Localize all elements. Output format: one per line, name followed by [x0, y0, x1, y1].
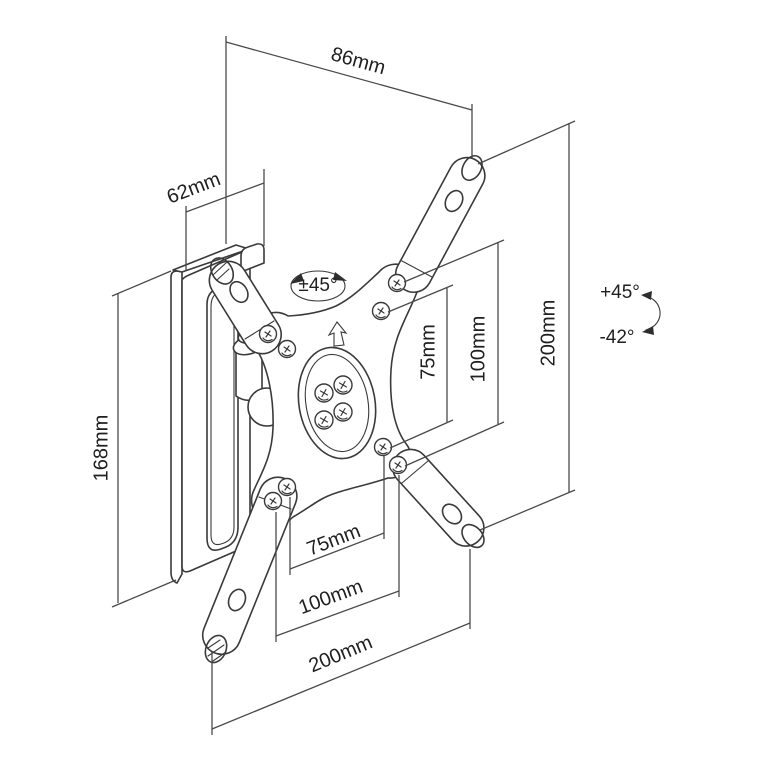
- dimension-label: 75mm: [304, 520, 364, 560]
- dimension-label: 100mm: [296, 576, 366, 619]
- dimension-label: 62mm: [164, 168, 224, 208]
- wall-mount-technical-diagram: ±45° +45° -42° 86mm 62mm 168mm: [0, 0, 760, 760]
- wall-plate-side-face: [171, 271, 182, 583]
- vesa100-screw-bottom-left: [265, 493, 282, 510]
- dimension-label: 168mm: [90, 415, 112, 482]
- center-screw: [315, 384, 333, 402]
- swivel-annotation: ±45°: [290, 271, 347, 301]
- tilt-annotation: +45° -42°: [599, 282, 660, 348]
- center-screw: [334, 376, 352, 394]
- tilt-up-label: +45°: [600, 282, 640, 303]
- dimension-wall-plate-height: 168mm: [90, 271, 176, 607]
- vesa100-screw-top-right: [389, 275, 406, 292]
- vesa75-screw-top-left: [279, 341, 296, 358]
- vesa75-screw-top-right: [373, 303, 390, 320]
- vesa75-screw-bottom-left: [279, 479, 296, 496]
- tilt-arrow-icon: [644, 296, 660, 330]
- dimension-label: 75mm: [417, 324, 439, 380]
- vesa100-screw-bottom-right: [390, 457, 407, 474]
- tilt-down-label: -42°: [599, 327, 634, 348]
- wall-plate-hook: [241, 244, 264, 272]
- center-screw: [315, 411, 333, 429]
- vesa100-screw-top-left: [260, 326, 277, 343]
- diagram-canvas: ±45° +45° -42° 86mm 62mm 168mm: [0, 0, 760, 760]
- vesa75-screw-bottom-right: [375, 439, 392, 456]
- arm-top-right: [389, 151, 491, 298]
- dimension-label: 100mm: [467, 316, 489, 383]
- dimension-plate-height: 200mm: [478, 121, 575, 530]
- dimension-label: 86mm: [328, 43, 387, 79]
- dimension-label: 200mm: [537, 300, 559, 367]
- swivel-angle-label: ±45°: [298, 275, 337, 296]
- dimension-label: 200mm: [306, 631, 376, 677]
- center-screw: [334, 403, 352, 421]
